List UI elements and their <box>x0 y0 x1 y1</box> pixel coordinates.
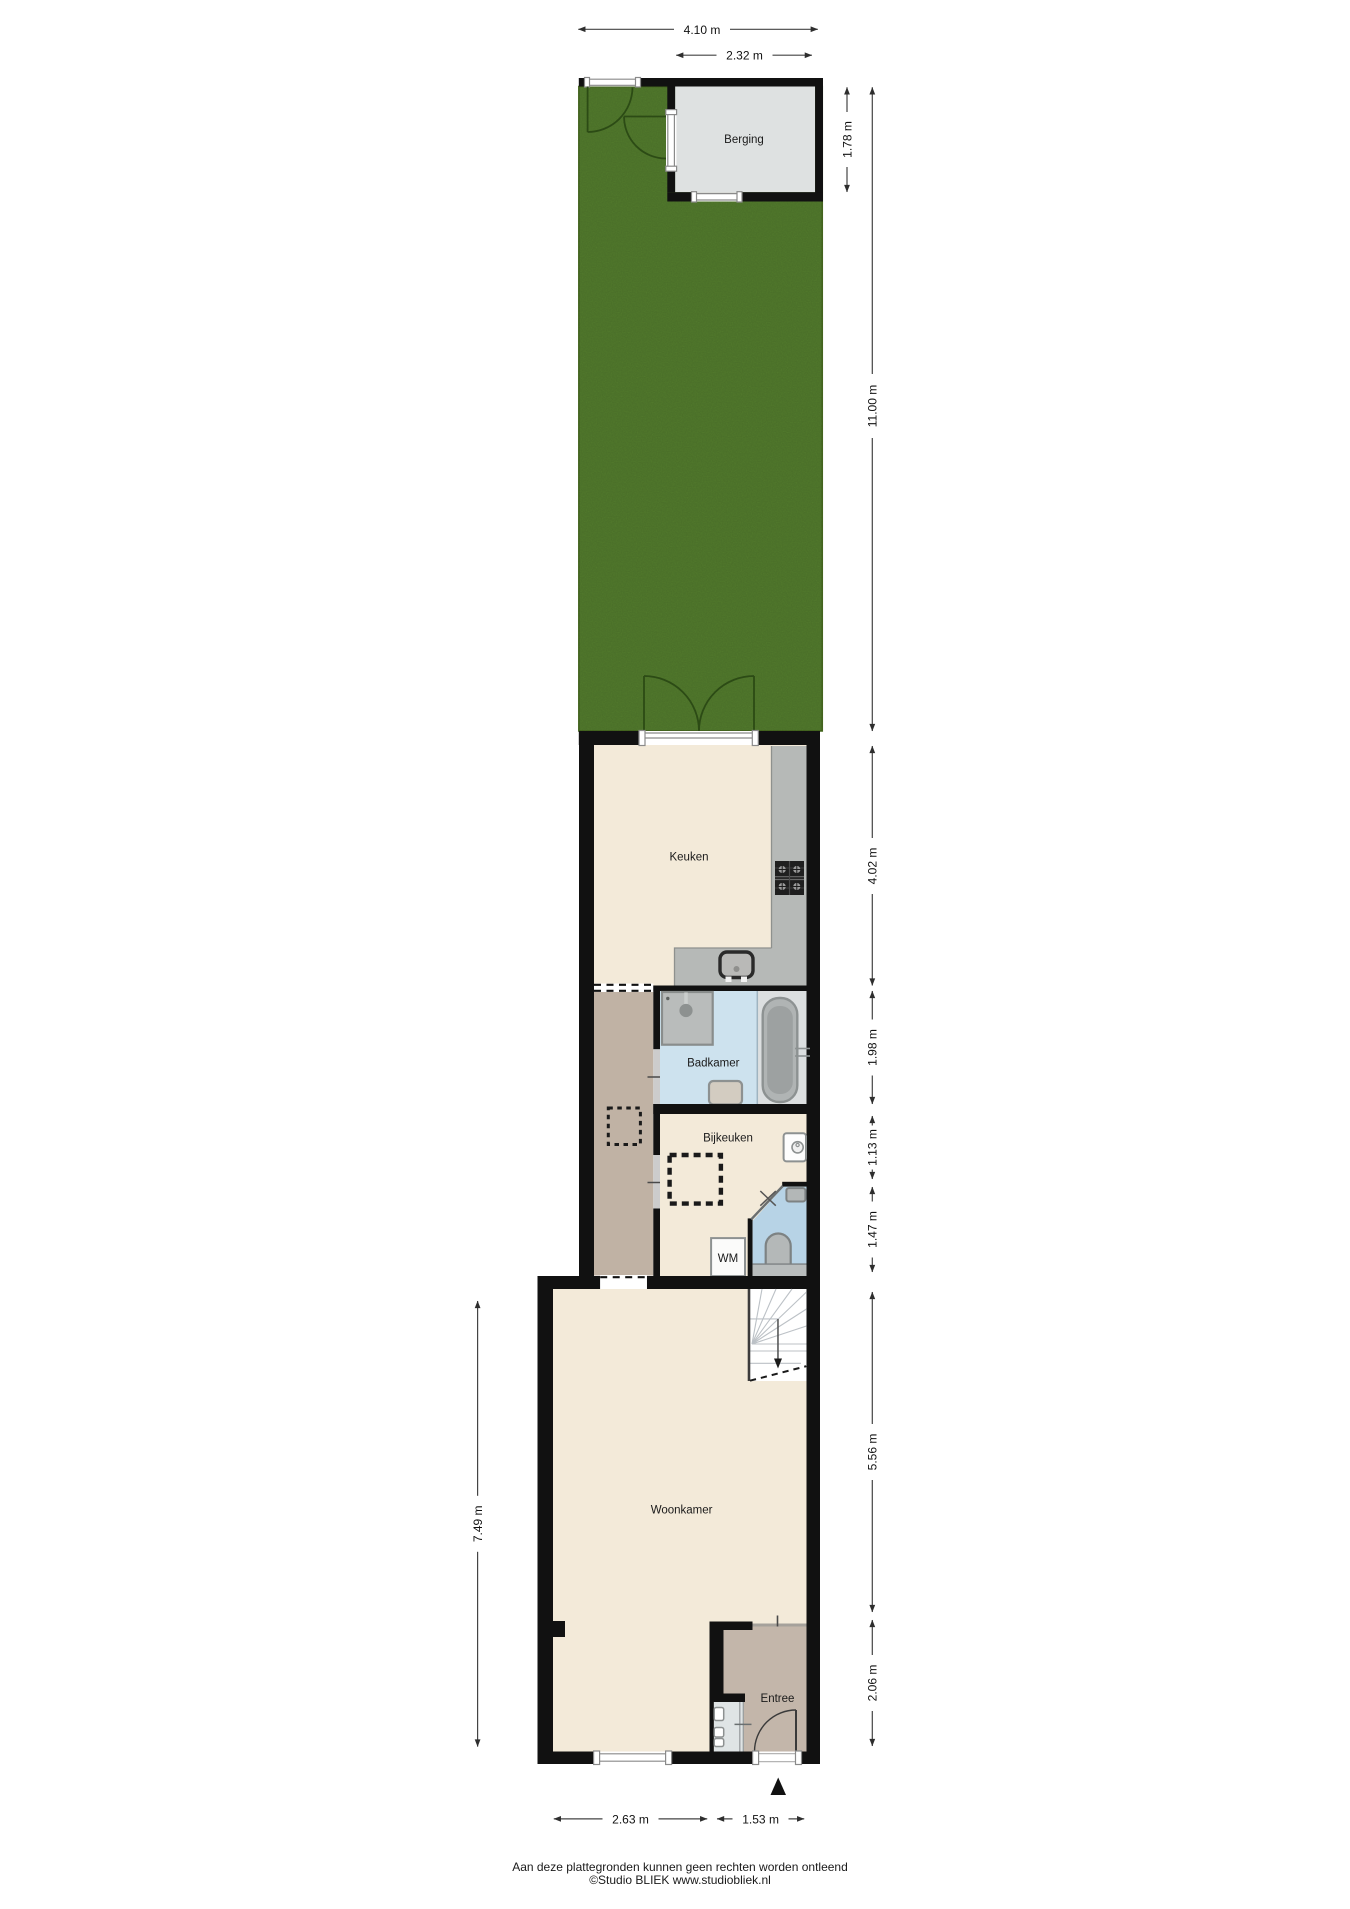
svg-text:Bijkeuken: Bijkeuken <box>703 1132 753 1144</box>
svg-text:Entree: Entree <box>761 1693 795 1705</box>
svg-text:4.02 m: 4.02 m <box>866 848 880 885</box>
svg-text:Keuken: Keuken <box>669 852 708 864</box>
svg-text:Berging: Berging <box>724 134 764 146</box>
svg-text:1.98 m: 1.98 m <box>866 1029 880 1066</box>
svg-text:11.00 m: 11.00 m <box>866 385 880 427</box>
svg-text:1.53 m: 1.53 m <box>742 1812 779 1826</box>
svg-text:5.56 m: 5.56 m <box>866 1434 880 1471</box>
svg-text:2.63 m: 2.63 m <box>612 1812 649 1826</box>
svg-text:1.47 m: 1.47 m <box>866 1211 880 1248</box>
svg-text:2.32 m: 2.32 m <box>726 49 763 63</box>
svg-text:©Studio BLIEK www.studiobliek.: ©Studio BLIEK www.studiobliek.nl <box>589 1873 771 1887</box>
svg-text:1.13 m: 1.13 m <box>866 1129 880 1166</box>
svg-text:1.78 m: 1.78 m <box>840 121 854 158</box>
svg-text:2.06 m: 2.06 m <box>866 1665 880 1702</box>
svg-text:4.10 m: 4.10 m <box>684 23 721 37</box>
svg-text:7.49 m: 7.49 m <box>471 1505 485 1542</box>
svg-text:Woonkamer: Woonkamer <box>651 1505 713 1517</box>
svg-text:Aan deze plattegronden kunnen: Aan deze plattegronden kunnen geen recht… <box>512 1860 848 1874</box>
svg-text:Badkamer: Badkamer <box>687 1058 740 1070</box>
svg-text:WM: WM <box>718 1253 738 1265</box>
